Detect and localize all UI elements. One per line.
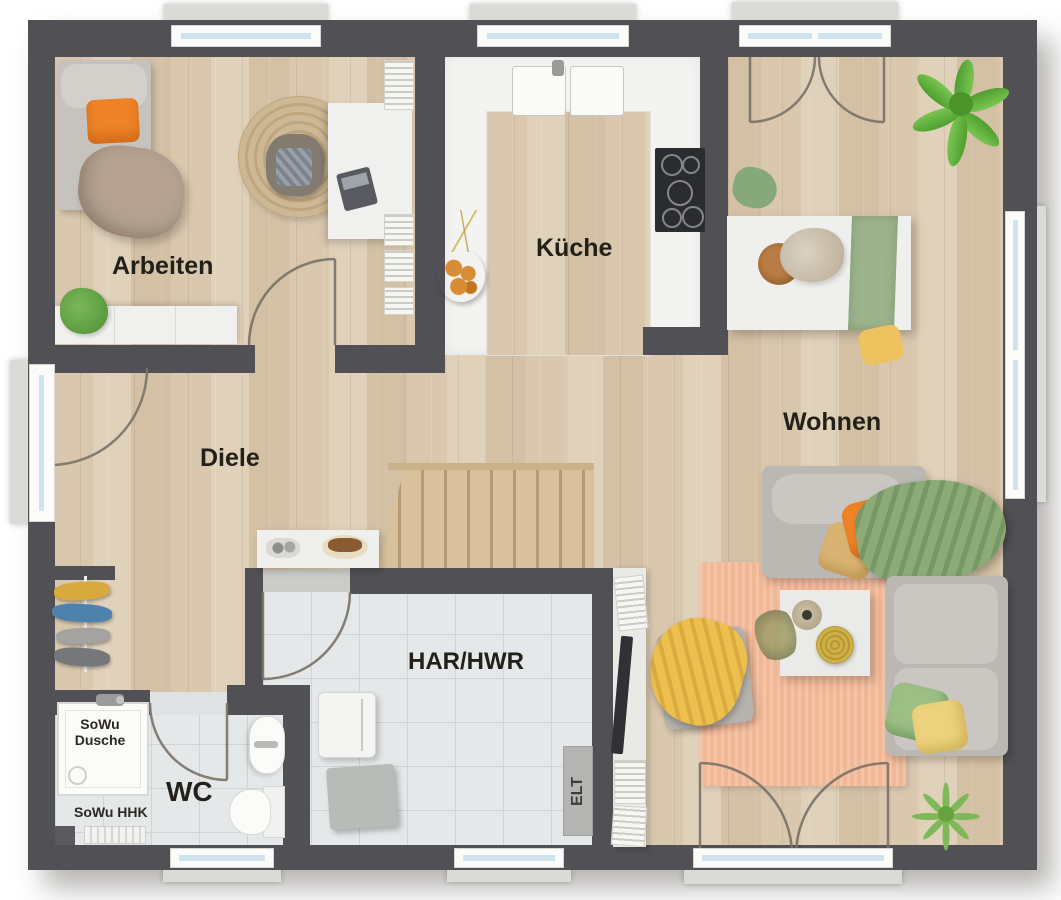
- door-swing-arcs: [0, 0, 1061, 900]
- wohnen-window-glass2: [1013, 360, 1018, 490]
- kueche-window-glass: [487, 33, 619, 39]
- balcony-door-glass2: [818, 33, 882, 39]
- label-shower-line2: Dusche: [75, 732, 126, 748]
- wc-window-glass: [179, 855, 265, 861]
- room-label-har-hwr: HAR/HWR: [408, 648, 524, 676]
- har-window-glass: [463, 855, 555, 861]
- balcony-door-arc-right: [819, 57, 884, 122]
- arbeiten-window-glass: [181, 33, 311, 39]
- arbeiten-door-arc: [249, 259, 335, 345]
- entrance-door-arc: [50, 368, 147, 465]
- room-label-diele: Diele: [200, 444, 260, 473]
- label-shower-line1: SoWu: [80, 716, 119, 732]
- wohnen-window-glass: [1013, 220, 1018, 350]
- wc-window: [171, 849, 273, 867]
- kueche-window: [478, 26, 628, 46]
- room-label-arbeiten: Arbeiten: [112, 252, 213, 281]
- terrace-door-glass: [702, 855, 884, 861]
- label-elt: ELT: [563, 746, 593, 836]
- terrace-door-arc-left: [700, 763, 792, 855]
- entrance-door-line: [39, 375, 44, 511]
- har-door-arc: [263, 592, 350, 679]
- room-label-wohnen: Wohnen: [783, 408, 881, 437]
- terrace-door: [694, 849, 892, 867]
- terrace-door-arc-right: [796, 763, 888, 855]
- room-label-kueche: Küche: [536, 234, 612, 263]
- arbeiten-window: [172, 26, 320, 46]
- balcony-door-top: [740, 26, 890, 46]
- wohnen-window: [1006, 212, 1024, 498]
- balcony-door-arc-left: [750, 57, 815, 122]
- wc-door-arc: [150, 703, 227, 780]
- balcony-door-glass: [748, 33, 812, 39]
- entrance-door-leaf: [30, 365, 54, 521]
- har-window: [455, 849, 563, 867]
- label-shower: SoWu Dusche: [58, 716, 142, 748]
- label-heater: SoWu HHK: [74, 804, 148, 820]
- floor-plan: Arbeiten Küche Wohnen Diele HAR/HWR WC S…: [0, 0, 1061, 900]
- room-label-wc: WC: [166, 776, 213, 808]
